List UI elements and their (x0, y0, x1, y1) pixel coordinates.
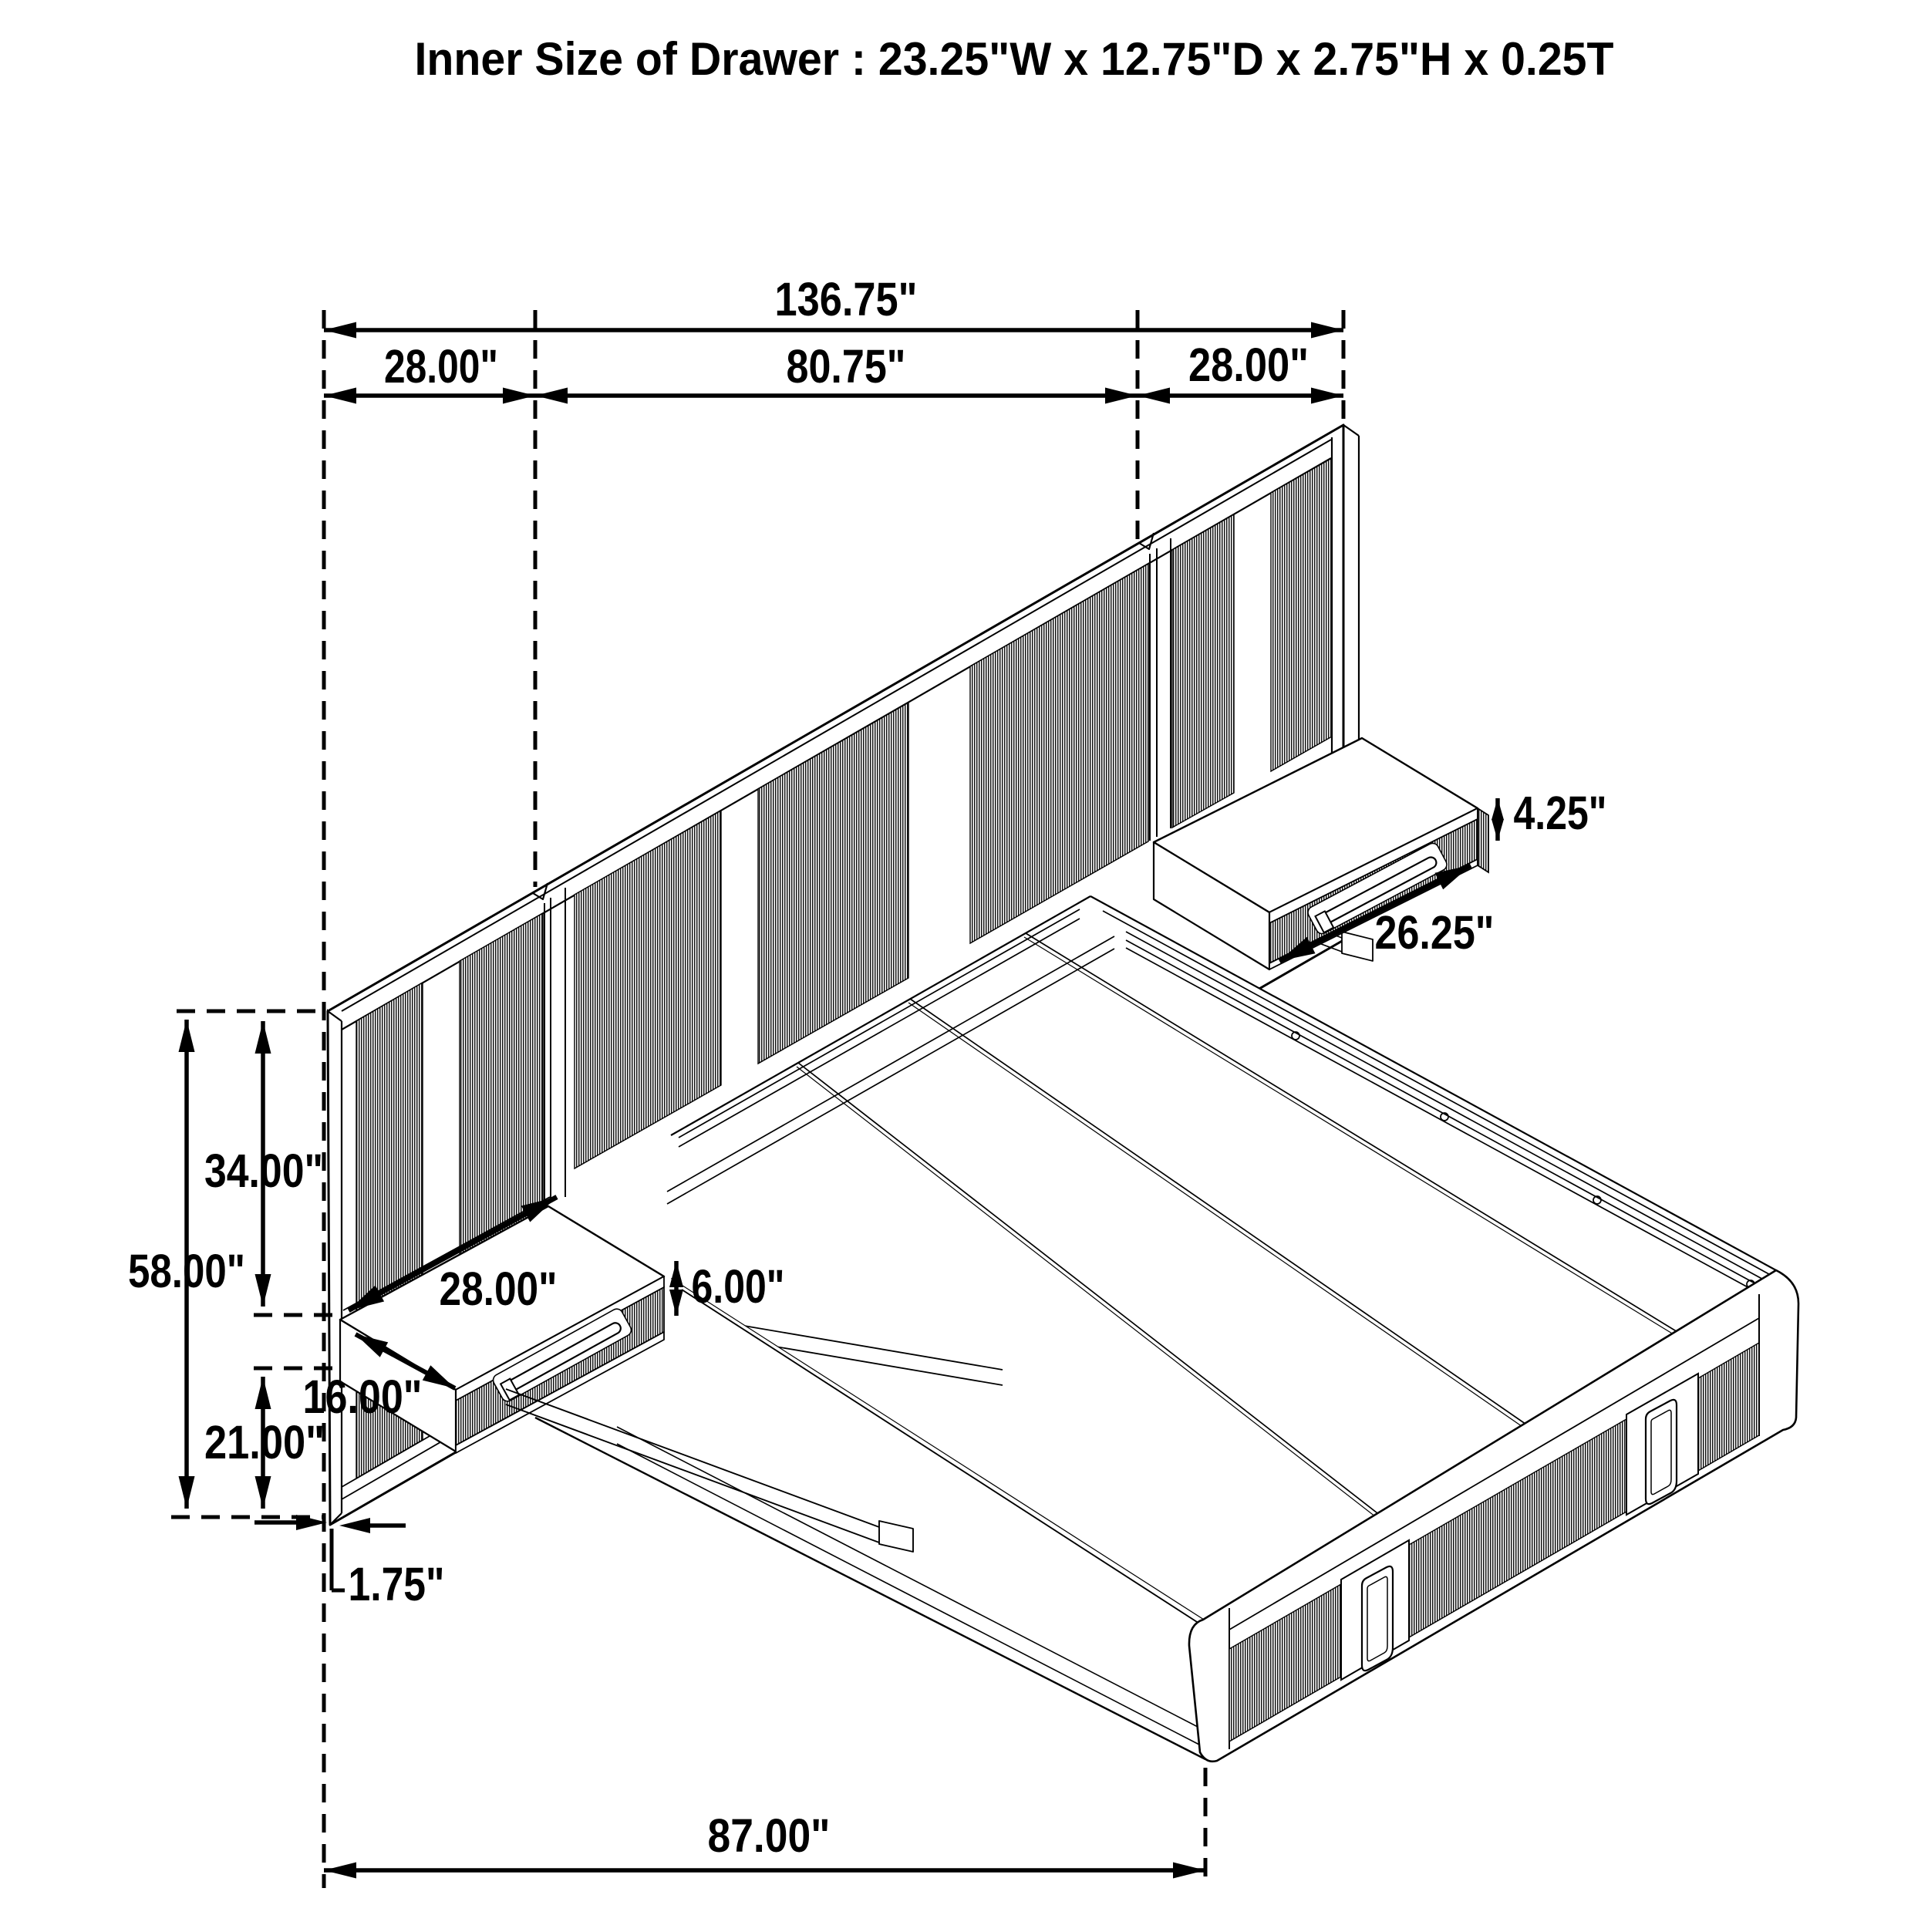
svg-text:26.25": 26.25" (1375, 906, 1495, 959)
svg-text:28.00": 28.00" (1188, 339, 1309, 391)
svg-text:58.00": 58.00" (128, 1245, 245, 1297)
svg-text:28.00": 28.00" (440, 1263, 558, 1315)
svg-text:136.75": 136.75" (775, 273, 918, 325)
svg-text:Inner Size of Drawer : 23.25"W: Inner Size of Drawer : 23.25"W x 12.75"D… (415, 33, 1614, 85)
svg-text:80.75": 80.75" (787, 340, 906, 393)
svg-text:4.25": 4.25" (1514, 787, 1607, 839)
svg-text:87.00": 87.00" (708, 1809, 831, 1862)
svg-text:1.75": 1.75" (349, 1558, 445, 1610)
svg-text:28.00": 28.00" (384, 340, 498, 393)
svg-text:34.00": 34.00" (204, 1145, 323, 1197)
svg-text:21.00": 21.00" (204, 1416, 325, 1468)
svg-text:6.00": 6.00" (692, 1260, 785, 1313)
svg-text:16.00": 16.00" (303, 1371, 423, 1423)
